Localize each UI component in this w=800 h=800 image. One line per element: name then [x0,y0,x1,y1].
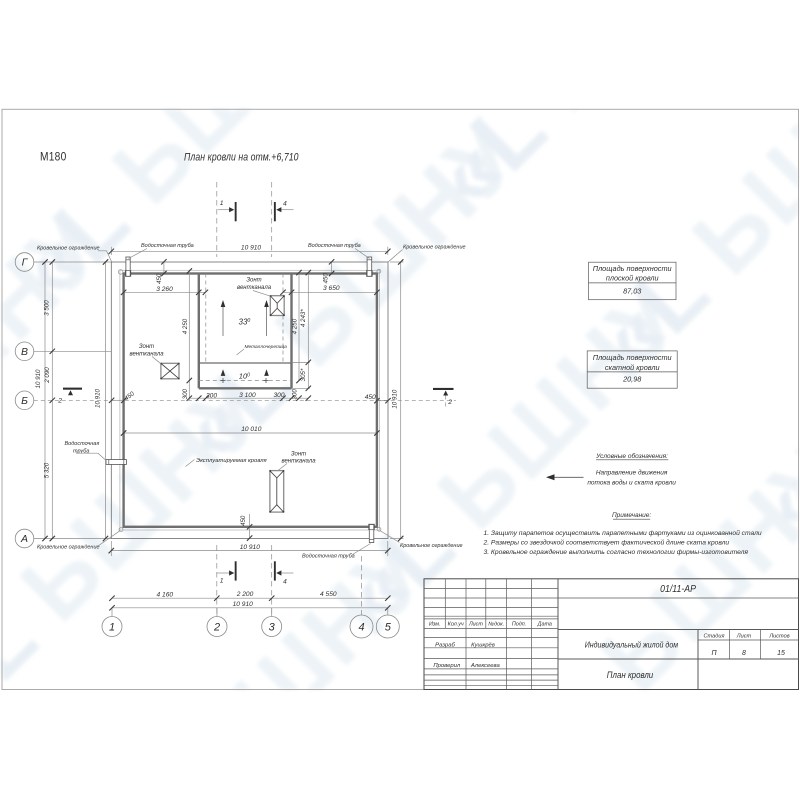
svg-text:2: 2 [447,399,452,406]
svg-text:Эксплуатируемая кровля: Эксплуатируемая кровля [196,458,268,464]
svg-text:Подп.: Подп. [512,621,526,627]
svg-text:потока воды и ската кровли: потока воды и ската кровли [587,478,676,486]
svg-text:А: А [20,533,28,545]
svg-text:4 160: 4 160 [157,591,174,598]
svg-text:Б: Б [21,395,28,407]
svg-text:Кол.уч: Кол.уч [448,621,464,627]
svg-text:Металлочерепица: Металлочерепица [245,344,288,350]
svg-text:87,03: 87,03 [623,287,641,296]
svg-text:4 250: 4 250 [182,318,189,334]
svg-text:5 320: 5 320 [43,462,50,478]
svg-text:3. Кровельное ограждение выпол: 3. Кровельное ограждение выполнить согла… [484,548,749,556]
svg-text:450: 450 [323,273,330,284]
svg-text:1: 1 [220,577,224,584]
svg-text:4 550: 4 550 [320,591,337,598]
svg-text:2: 2 [57,398,62,405]
svg-text:450: 450 [365,394,376,401]
svg-text:Алексеева: Алексеева [470,663,501,669]
svg-text:Дата: Дата [537,621,552,627]
svg-text:4: 4 [283,578,287,585]
svg-text:3 650: 3 650 [323,285,340,292]
svg-text:скатной кровли: скатной кровли [605,363,660,372]
svg-text:вентканала: вентканала [129,351,164,357]
svg-text:Примечание:: Примечание: [612,512,651,519]
svg-text:305*: 305* [300,368,307,381]
svg-text:10 910: 10 910 [241,245,262,252]
svg-text:Зонт: Зонт [246,277,261,283]
svg-text:10 010: 10 010 [241,426,262,433]
svg-text:М180: М180 [40,151,67,164]
svg-text:01/11-АР: 01/11-АР [660,584,696,596]
svg-text:450: 450 [240,515,247,526]
svg-text:Лист: Лист [468,621,483,627]
svg-text:Стадия: Стадия [704,633,725,639]
svg-text:2: 2 [213,621,220,633]
svg-text:2. Размеры со звездочкой соотв: 2. Размеры со звездочкой соответствует ф… [483,539,730,547]
svg-text:Проверил: Проверил [433,663,461,669]
svg-text:10 910: 10 910 [35,369,42,388]
svg-text:Лист: Лист [736,633,752,639]
svg-text:плоской кровли: плоской кровли [606,274,659,283]
svg-text:Кровельное ограждение: Кровельное ограждение [37,544,100,550]
svg-text:20,98: 20,98 [622,375,642,384]
svg-text:3 500: 3 500 [43,300,50,316]
svg-text:Разраб: Разраб [435,642,455,648]
svg-text:4 250: 4 250 [291,318,298,334]
svg-text:Кровельное ограждение: Кровельное ограждение [37,245,100,251]
svg-text:3 100: 3 100 [239,392,256,399]
svg-text:Индивидуальный жилой дом: Индивидуальный жилой дом [585,640,679,650]
svg-text:Изм.: Изм. [429,621,441,627]
svg-text:Зонт: Зонт [291,451,306,457]
svg-text:Водосточная труба: Водосточная труба [302,554,355,560]
svg-text:1: 1 [220,200,224,207]
svg-text:Условные обозначения:: Условные обозначения: [595,452,668,460]
svg-text:Направление движения: Направление движения [596,469,668,477]
svg-text:План кровли: План кровли [607,669,654,680]
svg-text:№док.: №док. [488,621,504,627]
svg-text:Кровельное ограждение: Кровельное ограждение [400,543,463,549]
svg-text:450: 450 [156,273,163,284]
svg-text:10 910: 10 910 [94,388,101,407]
svg-text:4: 4 [283,201,287,208]
svg-text:8: 8 [742,650,746,657]
svg-text:300: 300 [182,388,189,399]
svg-text:Водосточная труба: Водосточная труба [308,243,361,249]
svg-text:10 910: 10 910 [391,389,398,408]
svg-text:10 910: 10 910 [240,544,261,551]
svg-text:2 090: 2 090 [44,367,51,384]
svg-text:300: 300 [292,389,299,400]
svg-text:300: 300 [273,392,284,399]
svg-text:Листов: Листов [768,633,789,639]
svg-text:5: 5 [385,621,392,633]
svg-text:2 200: 2 200 [236,591,254,598]
svg-text:4: 4 [358,621,364,633]
svg-text:300: 300 [206,392,217,399]
svg-text:Кровельное ограждение: Кровельное ограждение [403,245,466,251]
svg-text:1. Защиту парапетов осуществит: 1. Защиту парапетов осуществить парапетн… [484,529,762,537]
svg-text:3: 3 [269,621,276,633]
svg-text:Зонт: Зонт [139,344,154,350]
svg-text:Площадь поверхности: Площадь поверхности [593,264,672,273]
svg-text:В: В [21,346,28,358]
svg-text:1: 1 [109,621,115,633]
svg-text:План кровли на отм.+6,710: План кровли на отм.+6,710 [184,152,299,164]
svg-text:4 243*: 4 243* [300,309,307,327]
svg-text:Водосточная: Водосточная [65,441,100,447]
svg-text:Водосточная труба: Водосточная труба [141,243,194,249]
svg-text:3 260: 3 260 [156,286,173,293]
svg-text:10 910: 10 910 [233,601,254,608]
svg-text:вентканала: вентканала [237,285,272,291]
svg-text:Площадь поверхности: Площадь поверхности [593,353,672,362]
svg-text:Кушкрёв: Кушкрёв [471,642,495,648]
svg-text:15: 15 [777,650,785,657]
